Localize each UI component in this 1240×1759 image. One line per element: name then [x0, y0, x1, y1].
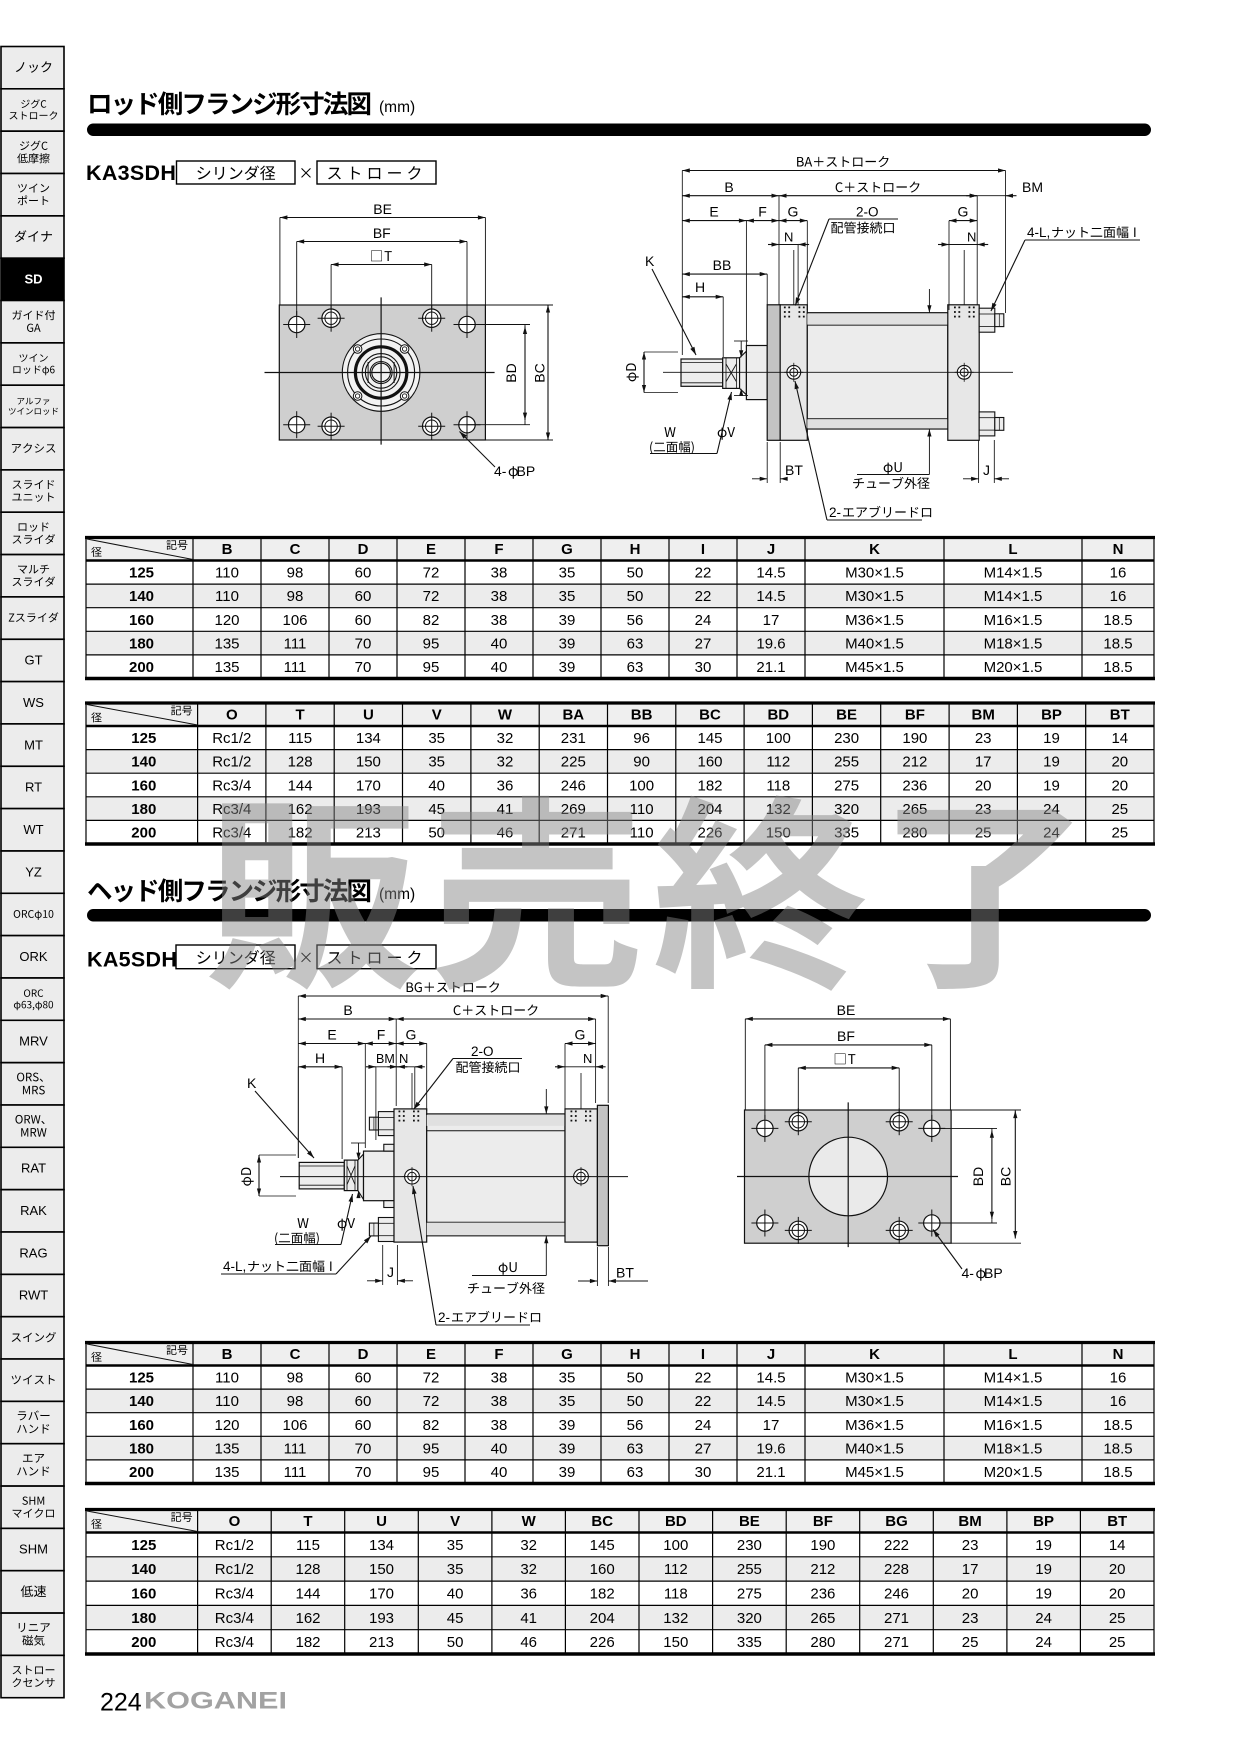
svg-text:Rc3/4: Rc3/4 [215, 1586, 254, 1603]
svg-text:246: 246 [561, 777, 586, 794]
svg-text:255: 255 [834, 754, 859, 771]
svg-text:38: 38 [491, 565, 508, 582]
svg-text:200: 200 [129, 1464, 154, 1481]
svg-text:213: 213 [369, 1634, 394, 1651]
svg-text:RT: RT [25, 780, 42, 795]
svg-text:Rc1/2: Rc1/2 [215, 1537, 254, 1554]
svg-text:246: 246 [884, 1586, 909, 1603]
svg-text:16: 16 [1110, 565, 1127, 582]
svg-text:255: 255 [737, 1561, 762, 1578]
svg-text:BD: BD [767, 707, 789, 724]
svg-text:110: 110 [215, 588, 239, 605]
svg-text:4-L,: 4-L, [223, 1259, 246, 1274]
svg-text:BF: BF [837, 1028, 855, 1044]
svg-text:M20×1.5: M20×1.5 [984, 1464, 1043, 1481]
svg-text:60: 60 [355, 1370, 372, 1387]
svg-text:18.5: 18.5 [1103, 612, 1132, 629]
svg-text:BD: BD [665, 1513, 687, 1530]
svg-text:145: 145 [697, 730, 722, 747]
svg-text:95: 95 [423, 1464, 440, 1481]
svg-text:120: 120 [214, 1417, 239, 1434]
svg-text:40: 40 [491, 1464, 508, 1481]
svg-text:J: J [767, 541, 775, 558]
svg-text:N: N [583, 1051, 592, 1066]
svg-text:14.5: 14.5 [756, 1393, 785, 1410]
svg-text:222: 222 [884, 1537, 909, 1554]
svg-text:190: 190 [810, 1537, 835, 1554]
svg-text:160: 160 [129, 612, 154, 629]
svg-text:160: 160 [129, 1417, 154, 1434]
svg-text:125: 125 [129, 565, 154, 582]
svg-text:BM: BM [972, 707, 995, 724]
svg-text:95: 95 [423, 659, 440, 676]
svg-text:120: 120 [214, 612, 239, 629]
svg-text:17: 17 [763, 1417, 780, 1434]
svg-text:17: 17 [962, 1561, 979, 1578]
svg-text:135: 135 [214, 1440, 239, 1457]
svg-text:I: I [701, 1346, 705, 1363]
svg-text:150: 150 [369, 1561, 394, 1578]
svg-text:70: 70 [355, 635, 372, 652]
svg-text:30: 30 [695, 659, 712, 676]
svg-text:32: 32 [520, 1561, 537, 1578]
svg-text:G: G [958, 204, 969, 220]
svg-text:25: 25 [962, 1634, 979, 1651]
svg-text:M40×1.5: M40×1.5 [845, 1440, 904, 1457]
svg-text:236: 236 [810, 1586, 835, 1603]
svg-text:18.5: 18.5 [1103, 1440, 1132, 1457]
svg-text:39: 39 [559, 612, 576, 629]
svg-text:125: 125 [131, 730, 156, 747]
svg-text:MRV: MRV [19, 1034, 48, 1049]
svg-text:40: 40 [491, 659, 508, 676]
svg-text:BT: BT [616, 1265, 634, 1281]
svg-text:M36×1.5: M36×1.5 [845, 1417, 904, 1434]
svg-text:111: 111 [284, 659, 307, 676]
svg-text:335: 335 [737, 1634, 762, 1651]
svg-text:BD: BD [503, 363, 519, 382]
svg-text:C: C [290, 1346, 301, 1363]
svg-text:N: N [967, 230, 976, 245]
svg-text:F: F [758, 204, 767, 220]
svg-text:265: 265 [810, 1610, 835, 1627]
svg-text:35: 35 [559, 565, 576, 582]
svg-text:180: 180 [131, 801, 156, 818]
svg-text:182: 182 [295, 1634, 320, 1651]
svg-text:4-: 4- [962, 1265, 975, 1281]
svg-text:YZ: YZ [25, 864, 42, 879]
svg-text:B: B [222, 1346, 233, 1363]
svg-text:96: 96 [633, 730, 650, 747]
svg-text:BT: BT [785, 462, 803, 478]
svg-text:KA5SDH: KA5SDH [87, 948, 177, 972]
svg-text:BM: BM [958, 1513, 981, 1530]
svg-text:17: 17 [975, 754, 992, 771]
svg-text:40: 40 [428, 777, 445, 794]
svg-text:25: 25 [1109, 1634, 1126, 1651]
svg-text:63: 63 [627, 635, 644, 652]
svg-text:25: 25 [1109, 1610, 1126, 1627]
svg-text:50: 50 [447, 1634, 464, 1651]
svg-text:18.5: 18.5 [1103, 659, 1132, 676]
svg-text:160: 160 [131, 777, 156, 794]
svg-text:110: 110 [630, 825, 654, 842]
svg-text:35: 35 [428, 754, 445, 771]
svg-text:236: 236 [902, 777, 927, 794]
svg-text:100: 100 [766, 730, 791, 747]
svg-text:228: 228 [884, 1561, 909, 1578]
svg-text:190: 190 [902, 730, 927, 747]
svg-text:225: 225 [561, 754, 586, 771]
svg-text:35: 35 [428, 730, 445, 747]
svg-text:170: 170 [369, 1586, 394, 1603]
svg-text:14.5: 14.5 [756, 588, 785, 605]
svg-text:BC: BC [998, 1167, 1014, 1186]
svg-text:19: 19 [1043, 777, 1060, 794]
svg-text:Rc1/2: Rc1/2 [212, 730, 251, 747]
svg-text:M14×1.5: M14×1.5 [984, 565, 1043, 582]
svg-text:BM: BM [376, 1052, 395, 1066]
svg-text:M45×1.5: M45×1.5 [845, 659, 904, 676]
svg-text:M20×1.5: M20×1.5 [984, 659, 1043, 676]
svg-text:226: 226 [590, 1634, 615, 1651]
svg-text:M14×1.5: M14×1.5 [984, 1393, 1043, 1410]
svg-text:M45×1.5: M45×1.5 [845, 1464, 904, 1481]
svg-text:N: N [784, 230, 793, 245]
svg-text:50: 50 [627, 1393, 644, 1410]
svg-text:22: 22 [695, 565, 712, 582]
svg-text:BD: BD [970, 1167, 986, 1186]
svg-text:2-: 2- [829, 505, 841, 520]
svg-text:U: U [363, 707, 374, 724]
svg-text:118: 118 [766, 777, 790, 794]
svg-text:16: 16 [1110, 1370, 1127, 1387]
svg-text:14.5: 14.5 [756, 565, 785, 582]
svg-text:W: W [498, 707, 513, 724]
svg-text:63: 63 [627, 1464, 644, 1481]
svg-text:60: 60 [355, 1393, 372, 1410]
svg-text:125: 125 [129, 1370, 154, 1387]
svg-text:19: 19 [1043, 754, 1060, 771]
svg-text:230: 230 [737, 1537, 762, 1554]
svg-text:60: 60 [355, 612, 372, 629]
svg-text:63: 63 [627, 1440, 644, 1457]
svg-text:320: 320 [737, 1610, 762, 1627]
svg-text:95: 95 [423, 1440, 440, 1457]
svg-text:E: E [327, 1027, 336, 1043]
svg-text:M14×1.5: M14×1.5 [984, 1370, 1043, 1387]
svg-text:14: 14 [1111, 730, 1128, 747]
svg-text:72: 72 [423, 1393, 440, 1410]
svg-text:90: 90 [633, 754, 650, 771]
svg-text:G: G [788, 204, 799, 220]
svg-text:23: 23 [962, 1610, 979, 1627]
svg-text:14: 14 [1109, 1537, 1126, 1554]
svg-text:231: 231 [561, 730, 586, 747]
svg-text:39: 39 [559, 1440, 576, 1457]
svg-text:M16×1.5: M16×1.5 [984, 612, 1043, 629]
svg-text:RAT: RAT [21, 1161, 46, 1176]
svg-text:118: 118 [664, 1586, 688, 1603]
svg-text:50: 50 [627, 565, 644, 582]
svg-text:M14×1.5: M14×1.5 [984, 588, 1043, 605]
svg-text:L: L [1008, 1346, 1017, 1363]
svg-text:BE: BE [837, 1002, 856, 1018]
svg-text:BF: BF [813, 1513, 833, 1530]
svg-text:39: 39 [559, 1464, 576, 1481]
svg-text:70: 70 [355, 659, 372, 676]
svg-text:G: G [406, 1027, 417, 1043]
svg-text:M18×1.5: M18×1.5 [984, 635, 1043, 652]
svg-text:18.5: 18.5 [1103, 1464, 1132, 1481]
svg-text:110: 110 [215, 1393, 239, 1410]
svg-text:144: 144 [295, 1586, 320, 1603]
svg-text:H: H [315, 1050, 325, 1066]
svg-text:35: 35 [559, 1393, 576, 1410]
svg-text:19: 19 [1035, 1561, 1052, 1578]
svg-text:J: J [983, 462, 990, 478]
svg-text:G: G [575, 1027, 586, 1043]
svg-text:19: 19 [1035, 1586, 1052, 1603]
svg-text:25: 25 [1111, 801, 1128, 818]
svg-text:Rc3/4: Rc3/4 [212, 777, 251, 794]
svg-text:20: 20 [1111, 754, 1128, 771]
svg-text:2-O: 2-O [471, 1044, 494, 1059]
svg-text:82: 82 [423, 612, 440, 629]
svg-text:106: 106 [282, 612, 307, 629]
svg-text:70: 70 [355, 1464, 372, 1481]
svg-text:Rc1/2: Rc1/2 [215, 1561, 254, 1578]
svg-text:19.6: 19.6 [756, 1440, 785, 1457]
svg-text:D: D [358, 541, 369, 558]
svg-text:K: K [869, 1346, 880, 1363]
svg-text:K: K [645, 253, 655, 269]
svg-text:128: 128 [295, 1561, 320, 1578]
svg-text:O: O [229, 1513, 241, 1530]
svg-text:224: 224 [100, 1689, 142, 1717]
svg-text:111: 111 [284, 635, 307, 652]
svg-text:H: H [630, 541, 641, 558]
svg-text:23: 23 [962, 1537, 979, 1554]
svg-text:134: 134 [356, 730, 381, 747]
svg-text:4-L,: 4-L, [1027, 225, 1050, 240]
svg-text:98: 98 [287, 1393, 304, 1410]
svg-text:WS: WS [23, 695, 44, 710]
svg-text:160: 160 [131, 1586, 156, 1603]
svg-text:27: 27 [695, 1440, 712, 1457]
svg-text:110: 110 [630, 801, 654, 818]
svg-text:60: 60 [355, 1417, 372, 1434]
svg-text:204: 204 [590, 1610, 615, 1627]
svg-text:162: 162 [295, 1610, 320, 1627]
svg-text:72: 72 [423, 1370, 440, 1387]
svg-text:38: 38 [491, 1370, 508, 1387]
svg-text:38: 38 [491, 612, 508, 629]
svg-text:N: N [1113, 1346, 1124, 1363]
svg-text:GT: GT [24, 653, 42, 668]
svg-text:SD: SD [24, 272, 42, 287]
svg-text:19: 19 [1035, 1537, 1052, 1554]
svg-text:40: 40 [491, 635, 508, 652]
svg-text:M36×1.5: M36×1.5 [845, 612, 904, 629]
svg-text:BF: BF [373, 225, 391, 241]
svg-text:B: B [343, 1002, 352, 1018]
svg-text:134: 134 [369, 1537, 394, 1554]
svg-text:C: C [290, 541, 301, 558]
svg-text:36: 36 [520, 1586, 537, 1603]
svg-text:18.5: 18.5 [1103, 1417, 1132, 1434]
svg-text:32: 32 [497, 754, 514, 771]
svg-text:20: 20 [975, 777, 992, 794]
svg-text:212: 212 [902, 754, 927, 771]
svg-text:E: E [426, 1346, 436, 1363]
svg-text:145: 145 [590, 1537, 615, 1554]
svg-text:180: 180 [129, 635, 154, 652]
svg-text:E: E [426, 541, 436, 558]
svg-text:35: 35 [447, 1561, 464, 1578]
svg-text:56: 56 [627, 612, 644, 629]
svg-text:N: N [399, 1051, 408, 1066]
svg-text:F: F [494, 541, 503, 558]
svg-text:140: 140 [131, 754, 156, 771]
svg-text:40: 40 [447, 1586, 464, 1603]
svg-text:82: 82 [423, 1417, 440, 1434]
svg-text:45: 45 [447, 1610, 464, 1627]
svg-text:21.1: 21.1 [756, 1464, 785, 1481]
svg-text:18.5: 18.5 [1103, 635, 1132, 652]
svg-text:150: 150 [356, 754, 381, 771]
svg-text:112: 112 [664, 1561, 688, 1578]
svg-text:W: W [522, 1513, 537, 1530]
svg-text:39: 39 [559, 1417, 576, 1434]
svg-text:21.1: 21.1 [756, 659, 785, 676]
svg-text:T: T [296, 707, 305, 724]
svg-text:20: 20 [1111, 777, 1128, 794]
svg-text:BE: BE [739, 1513, 760, 1530]
svg-text:N: N [1113, 541, 1124, 558]
svg-text:M16×1.5: M16×1.5 [984, 1417, 1043, 1434]
svg-text:125: 125 [131, 1537, 156, 1554]
svg-text:128: 128 [288, 754, 313, 771]
svg-text:56: 56 [627, 1417, 644, 1434]
svg-text:110: 110 [215, 565, 239, 582]
svg-text:111: 111 [284, 1440, 307, 1457]
svg-text:M18×1.5: M18×1.5 [984, 1440, 1043, 1457]
svg-text:132: 132 [663, 1610, 688, 1627]
svg-text:M30×1.5: M30×1.5 [845, 588, 904, 605]
svg-text:BM: BM [1022, 179, 1043, 195]
svg-text:39: 39 [559, 659, 576, 676]
svg-text:RAK: RAK [20, 1203, 47, 1218]
svg-text:275: 275 [834, 777, 859, 794]
svg-text:38: 38 [491, 1417, 508, 1434]
svg-text:BT: BT [1110, 707, 1130, 724]
svg-text:23: 23 [975, 730, 992, 747]
svg-text:140: 140 [131, 1561, 156, 1578]
svg-text:212: 212 [810, 1561, 835, 1578]
svg-text:BF: BF [905, 707, 925, 724]
svg-text:72: 72 [423, 565, 440, 582]
svg-text:140: 140 [129, 588, 154, 605]
svg-text:G: G [561, 1346, 573, 1363]
svg-text:135: 135 [214, 1464, 239, 1481]
svg-text:Rc3/4: Rc3/4 [215, 1610, 254, 1627]
svg-text:BP: BP [517, 463, 536, 479]
svg-text:H: H [695, 279, 705, 295]
svg-text:280: 280 [810, 1634, 835, 1651]
svg-text:182: 182 [590, 1586, 615, 1603]
svg-text:K: K [869, 541, 880, 558]
svg-text:BG: BG [885, 1513, 908, 1530]
svg-text:200: 200 [131, 1634, 156, 1651]
svg-text:180: 180 [129, 1440, 154, 1457]
svg-text:24: 24 [695, 1417, 712, 1434]
svg-text:MT: MT [24, 737, 43, 752]
svg-text:4-: 4- [494, 463, 507, 479]
svg-text:Rc3/4: Rc3/4 [215, 1634, 254, 1651]
svg-text:D: D [358, 1346, 369, 1363]
svg-text:O: O [226, 707, 238, 724]
svg-text:72: 72 [423, 588, 440, 605]
svg-text:32: 32 [497, 730, 514, 747]
svg-text:V: V [450, 1513, 460, 1530]
svg-text:24: 24 [1035, 1610, 1052, 1627]
svg-text:B: B [724, 179, 733, 195]
svg-text:98: 98 [287, 1370, 304, 1387]
svg-text:200: 200 [129, 659, 154, 676]
svg-text:BE: BE [836, 707, 857, 724]
svg-text:B: B [222, 541, 233, 558]
svg-text:193: 193 [369, 1610, 394, 1627]
svg-text:24: 24 [1035, 1634, 1052, 1651]
svg-text:38: 38 [491, 1393, 508, 1410]
svg-text:98: 98 [287, 565, 304, 582]
svg-text:30: 30 [695, 1464, 712, 1481]
svg-text:170: 170 [356, 777, 381, 794]
svg-text:150: 150 [663, 1634, 688, 1651]
svg-text:22: 22 [695, 1393, 712, 1410]
svg-text:Rc1/2: Rc1/2 [212, 754, 251, 771]
svg-text:39: 39 [559, 635, 576, 652]
svg-text:SHM: SHM [19, 1542, 48, 1557]
svg-text:50: 50 [627, 588, 644, 605]
svg-text:180: 180 [131, 1610, 156, 1627]
svg-text:111: 111 [284, 1464, 307, 1481]
svg-text:E: E [709, 204, 718, 220]
svg-text:22: 22 [695, 588, 712, 605]
svg-text:BC: BC [591, 1513, 613, 1530]
svg-text:35: 35 [559, 1370, 576, 1387]
svg-text:2-: 2- [438, 1310, 450, 1325]
svg-text:H: H [630, 1346, 641, 1363]
svg-text:KOGANEI: KOGANEI [144, 1688, 287, 1715]
svg-text:M30×1.5: M30×1.5 [845, 1370, 904, 1387]
svg-text:16: 16 [1110, 1393, 1127, 1410]
svg-text:35: 35 [447, 1537, 464, 1554]
svg-text:35: 35 [559, 588, 576, 605]
svg-text:40: 40 [491, 1440, 508, 1457]
svg-text:36: 36 [497, 777, 514, 794]
svg-text:160: 160 [590, 1561, 615, 1578]
svg-text:20: 20 [1109, 1561, 1126, 1578]
svg-text:115: 115 [288, 730, 312, 747]
svg-text:BC: BC [699, 707, 721, 724]
svg-text:182: 182 [697, 777, 722, 794]
svg-text:135: 135 [214, 635, 239, 652]
svg-text:95: 95 [423, 635, 440, 652]
svg-text:24: 24 [695, 612, 712, 629]
svg-text:T: T [303, 1513, 312, 1530]
